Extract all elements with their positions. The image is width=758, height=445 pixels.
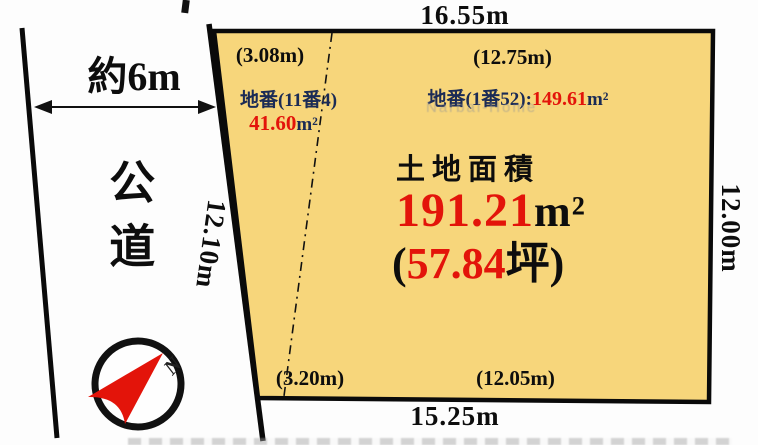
tsubo-open-paren: (: [392, 239, 407, 288]
land-plot-diagram: N 16.55m 15.25m 12.00m 12.10m 約6m 公道 (3.…: [0, 0, 758, 445]
right-lot-area-value: 149.61: [532, 88, 587, 110]
left-lot-number-label: 地番(11番4): [226, 91, 351, 111]
total-area-heading: 土地面積: [396, 154, 540, 184]
road-width-arrow: [34, 100, 216, 114]
left-lot-bottom-dimension: (3.20m): [265, 367, 355, 389]
right-lot-bottom-dimension: (12.05m): [468, 367, 563, 389]
watermark-text: Narbal-Home: [426, 100, 537, 116]
total-area-value: 191.21: [396, 184, 534, 237]
left-lot-area-value: 41.60: [249, 111, 296, 135]
bottom-dimension-label: 15.25m: [390, 402, 520, 430]
left-lot-area-unit: m²: [296, 114, 318, 135]
top-dimension-label: 16.55m: [395, 1, 535, 29]
tsubo-unit-close: 坪): [506, 239, 565, 288]
total-area-unit: m²: [534, 187, 586, 236]
right-lot-area-unit: m²: [587, 89, 609, 110]
right-lot-top-dimension: (12.75m): [465, 46, 560, 68]
road-left-boundary-line: [22, 28, 57, 438]
compass: N: [88, 341, 187, 427]
road-width-label: 約6m: [70, 56, 198, 98]
total-area-tsubo-line: (57.84坪): [392, 241, 564, 287]
left-lot-top-dimension: (3.08m): [225, 44, 315, 66]
bottom-watermark-strip: [128, 438, 732, 445]
total-area-value-line: 191.21m²: [396, 186, 586, 236]
left-lot-area-label: 41.60m²: [226, 112, 341, 135]
right-dimension-label: 12.00m: [717, 182, 745, 274]
road-name-label: 公道: [105, 158, 153, 308]
tsubo-value: 57.84: [407, 239, 506, 288]
